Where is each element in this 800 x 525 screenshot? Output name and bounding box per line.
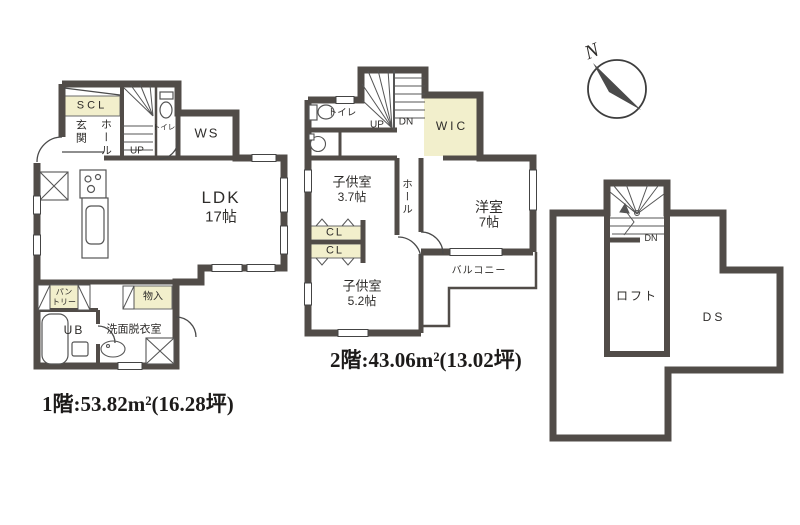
- room-label-ub: UB: [64, 324, 85, 338]
- room-label-pantry-line1: パン: [56, 287, 72, 296]
- kitchen-icon: [80, 170, 108, 258]
- room-label-ws: WS: [195, 127, 220, 142]
- room-label-hall-2f: ホール: [401, 178, 413, 216]
- loft-plan: [553, 183, 780, 438]
- first-floor-area-label: 1階:53.82m²(16.28坪): [42, 388, 234, 418]
- floorplan-drawing: [0, 0, 800, 525]
- room-label-kids1: 子供室: [332, 176, 371, 191]
- room-label-wic: WIC: [436, 120, 468, 134]
- loft-interior-walls: [607, 213, 667, 357]
- room-label-cl2: CL: [326, 245, 344, 258]
- room-size-kids2: 5.2帖: [348, 295, 377, 309]
- room-size-western: 7帖: [479, 216, 499, 231]
- compass: [588, 60, 646, 118]
- floorplan-canvas: SCL 玄関 ホール UP トイレ WS LDK 17帖 パン トリー UB 洗…: [0, 0, 800, 525]
- room-label-loft: ロフト: [616, 290, 658, 304]
- bathtub-icon: [42, 314, 88, 364]
- room-label-hall-1f: ホール: [99, 119, 112, 158]
- room-label-ds: DS: [703, 311, 726, 325]
- stairs-dn-label-2f: DN: [399, 116, 413, 128]
- room-label-ldk: LDK: [201, 188, 240, 208]
- room-size-ldk: 17帖: [205, 208, 237, 225]
- room-label-genkan: 玄関: [74, 119, 87, 145]
- washbasin-icon: [101, 341, 125, 357]
- room-label-kids2: 子供室: [342, 280, 381, 295]
- stairs-up-label-2f: UP: [370, 119, 384, 131]
- toilet-icon-1f: [160, 92, 173, 118]
- refrigerator-icon: [40, 172, 68, 200]
- room-label-western: 洋室: [475, 199, 503, 215]
- room-label-pantry-line2: トリー: [52, 297, 76, 306]
- stairs-dn-label-loft: DN: [645, 233, 658, 243]
- room-label-balcony: バルコニー: [452, 265, 507, 277]
- loft-stairs: [610, 184, 664, 235]
- room-label-cl1: CL: [326, 227, 344, 240]
- washing-machine-icon: [146, 338, 174, 364]
- balcony-rail: [421, 252, 536, 326]
- room-label-toilet-1f: トイレ: [153, 124, 176, 133]
- room-label-toilet-2f: トイレ: [328, 109, 357, 120]
- room-label-monoire: 物入: [143, 291, 163, 303]
- compass-needle: [593, 63, 641, 110]
- second-floor-door-arcs: [398, 232, 443, 260]
- room-size-kids1: 3.7帖: [338, 191, 367, 205]
- stairs-up-label-1f: UP: [130, 145, 144, 157]
- room-label-scl: SCL: [77, 100, 107, 113]
- first-floor-stairs: [122, 84, 153, 150]
- room-label-washroom: 洗面脱衣室: [107, 324, 162, 337]
- second-floor-area-label: 2階:43.06m²(13.02坪): [330, 344, 522, 374]
